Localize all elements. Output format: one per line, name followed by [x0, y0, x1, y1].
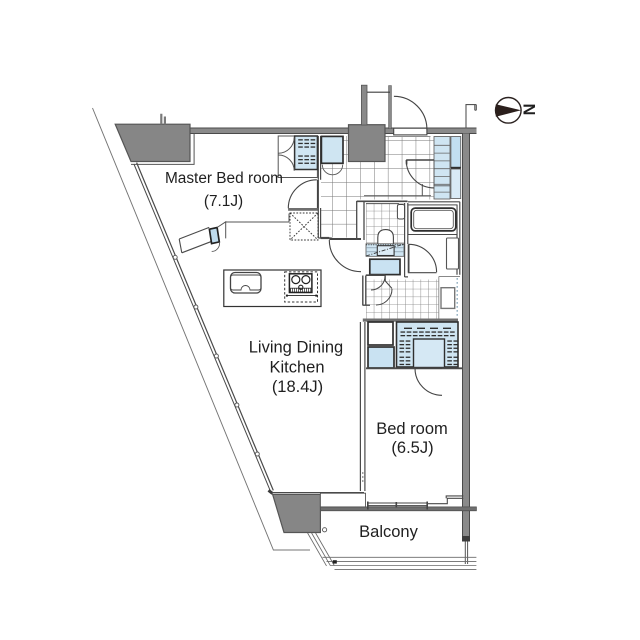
- svg-text:Kitchen: Kitchen: [269, 359, 324, 377]
- svg-text:Bed room: Bed room: [376, 420, 448, 438]
- svg-text:N: N: [520, 104, 538, 116]
- svg-text:(7.1J): (7.1J): [204, 193, 243, 210]
- svg-text:(6.5J): (6.5J): [391, 439, 433, 457]
- svg-text:(18.4J): (18.4J): [272, 378, 323, 396]
- svg-text:Balcony: Balcony: [359, 523, 418, 541]
- svg-text:Living Dining: Living Dining: [249, 339, 343, 357]
- svg-text:Master Bed room: Master Bed room: [165, 170, 283, 187]
